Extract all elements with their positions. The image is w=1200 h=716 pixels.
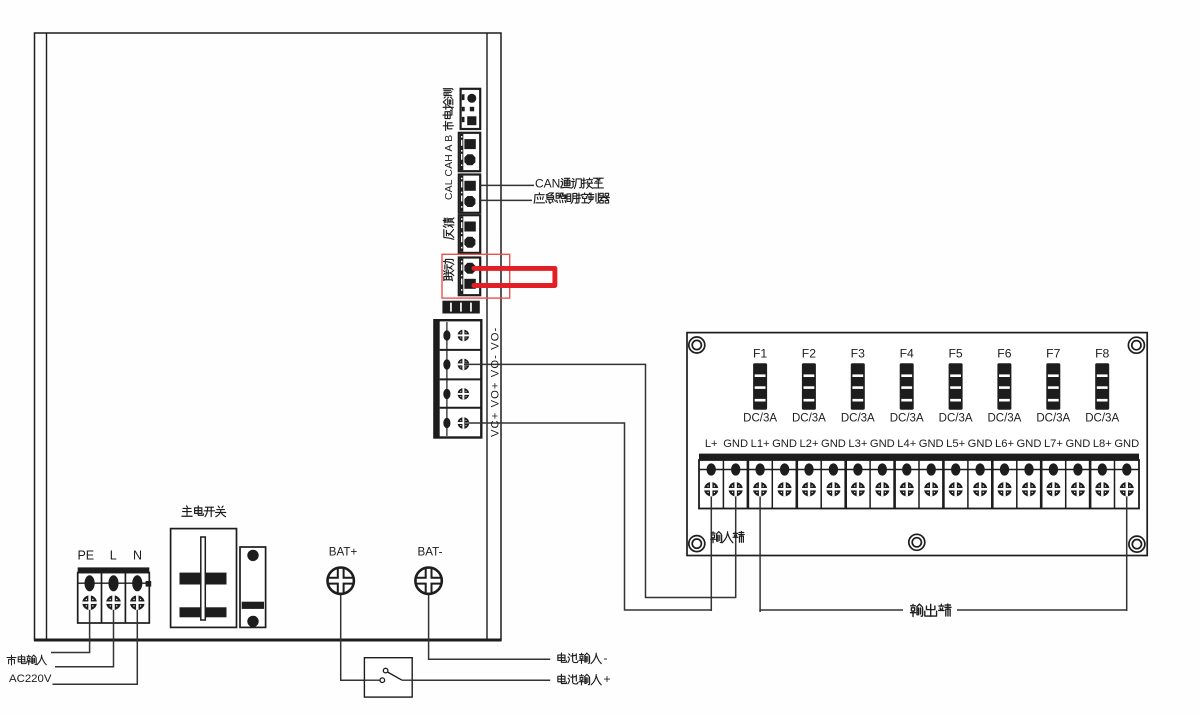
svg-text:DC/3A: DC/3A: [987, 413, 1021, 425]
svg-text:L1+: L1+: [751, 438, 770, 450]
svg-text:DC/3A: DC/3A: [841, 413, 875, 425]
svg-text:L: L: [110, 549, 117, 563]
svg-text:L6+: L6+: [995, 438, 1014, 450]
svg-text:PE: PE: [77, 549, 94, 563]
svg-text:L8+: L8+: [1093, 438, 1112, 450]
svg-text:BAT+: BAT+: [329, 545, 358, 558]
svg-text:F6: F6: [997, 347, 1011, 361]
svg-text:CAL CAH A B: CAL CAH A B: [444, 135, 455, 200]
svg-text:F7: F7: [1046, 347, 1060, 361]
svg-text:F1: F1: [753, 347, 767, 361]
svg-text:F5: F5: [948, 347, 962, 361]
svg-text:VC+ VO+ VO- VO-: VC+ VO+ VO- VO-: [489, 327, 501, 437]
svg-text:DC/3A: DC/3A: [743, 413, 777, 425]
svg-text:F2: F2: [802, 347, 816, 361]
svg-text:L5+: L5+: [946, 438, 965, 450]
svg-text:GND: GND: [870, 438, 895, 450]
svg-text:L3+: L3+: [848, 438, 867, 450]
svg-text:DC/3A: DC/3A: [792, 413, 826, 425]
svg-text:F4: F4: [900, 347, 914, 361]
svg-text:AC220V: AC220V: [9, 673, 52, 685]
svg-text:L2+: L2+: [800, 438, 819, 450]
svg-text:N: N: [133, 549, 142, 563]
svg-text:GND: GND: [968, 438, 993, 450]
svg-text:GND: GND: [723, 438, 748, 450]
svg-text:GND: GND: [772, 438, 797, 450]
svg-text:BAT-: BAT-: [418, 545, 443, 558]
svg-text:F3: F3: [851, 347, 865, 361]
svg-text:GND: GND: [1114, 438, 1139, 450]
svg-text:DC/3A: DC/3A: [890, 413, 924, 425]
svg-text:L4+: L4+: [897, 438, 916, 450]
svg-text:GND: GND: [1065, 438, 1090, 450]
svg-text:DC/3A: DC/3A: [1085, 413, 1119, 425]
svg-text:F8: F8: [1095, 347, 1109, 361]
svg-text:-: -: [604, 651, 608, 665]
svg-text:GND: GND: [919, 438, 944, 450]
svg-text:L7+: L7+: [1044, 438, 1063, 450]
svg-text:CAN: CAN: [535, 177, 560, 191]
svg-text:L+: L+: [705, 438, 718, 450]
svg-text:GND: GND: [1017, 438, 1042, 450]
svg-text:DC/3A: DC/3A: [1036, 413, 1070, 425]
svg-text:+: +: [604, 672, 611, 686]
svg-text:GND: GND: [821, 438, 846, 450]
svg-text:DC/3A: DC/3A: [939, 413, 973, 425]
